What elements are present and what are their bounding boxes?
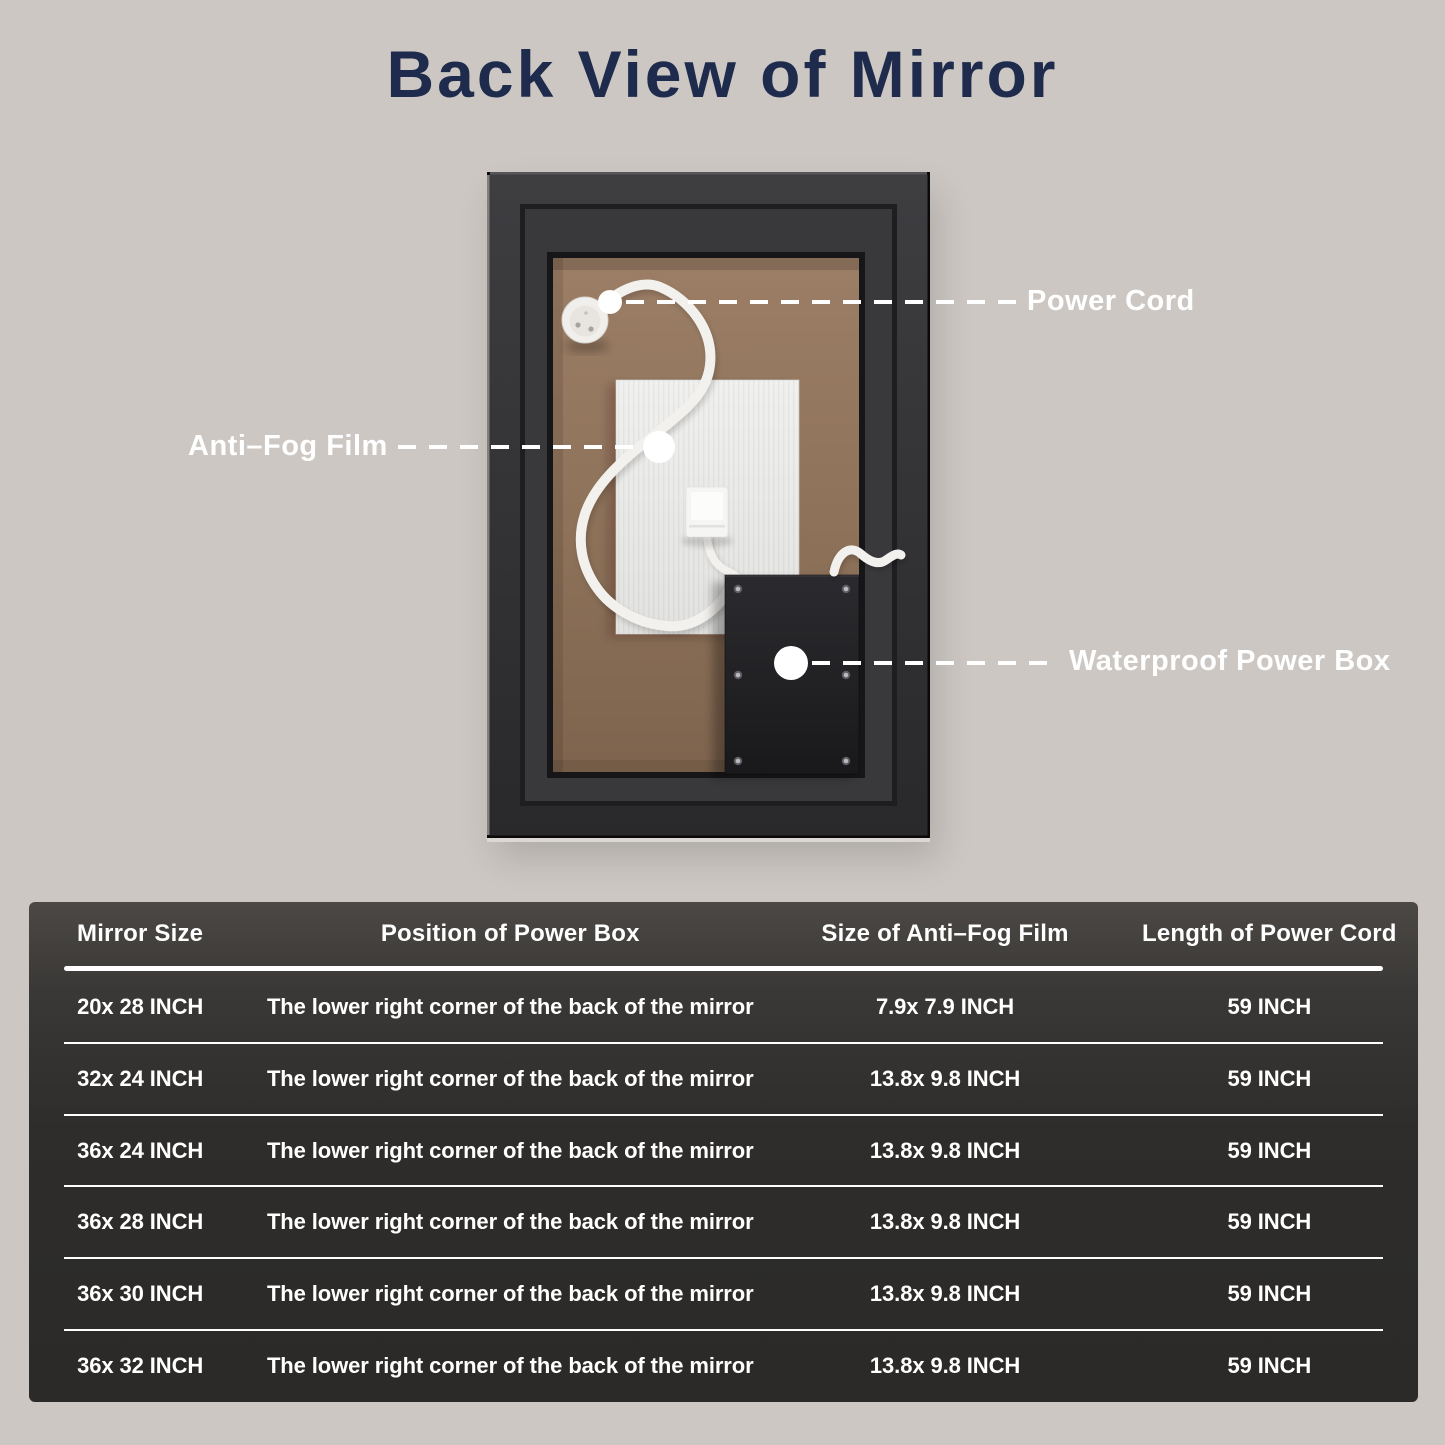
cell-mirror-size: 36x 32 INCH [29,1353,251,1379]
cell-film-size: 13.8x 9.8 INCH [769,1066,1120,1092]
column-header-cord-length: Length of Power Cord [1121,920,1418,948]
cell-power-box-position: The lower right corner of the back of th… [251,1353,769,1379]
column-header-mirror-size: Mirror Size [29,920,251,948]
waterproof-power-box-label: Waterproof Power Box [1069,645,1391,678]
cell-cord-length: 59 INCH [1121,994,1418,1020]
power-box-marker-dot [774,646,808,680]
spec-table-body: 20x 28 INCH The lower right corner of th… [29,971,1418,1402]
cell-film-size: 13.8x 9.8 INCH [769,1353,1120,1379]
cell-film-size: 13.8x 9.8 INCH [769,1138,1120,1164]
cell-mirror-size: 20x 28 INCH [29,994,251,1020]
anti-fog-film-marker-dot [643,431,675,463]
table-row: 36x 30 INCH The lower right corner of th… [29,1258,1418,1330]
cell-mirror-size: 36x 24 INCH [29,1138,251,1164]
mirror-back-illustration [487,172,930,838]
infographic-page: Back View of Mirror [0,0,1445,1445]
spec-table-header: Mirror Size Position of Power Box Size o… [29,902,1418,966]
cell-mirror-size: 36x 30 INCH [29,1281,251,1307]
power-cord-marker-dot [598,290,622,314]
cell-film-size: 13.8x 9.8 INCH [769,1209,1120,1235]
mirror-back-svg [487,172,930,838]
cell-cord-length: 59 INCH [1121,1209,1418,1235]
cell-mirror-size: 36x 28 INCH [29,1209,251,1235]
cell-cord-length: 59 INCH [1121,1353,1418,1379]
cell-power-box-position: The lower right corner of the back of th… [251,1209,769,1235]
table-row: 20x 28 INCH The lower right corner of th… [29,971,1418,1043]
cell-power-box-position: The lower right corner of the back of th… [251,1281,769,1307]
cell-film-size: 13.8x 9.8 INCH [769,1281,1120,1307]
table-row: 36x 32 INCH The lower right corner of th… [29,1330,1418,1402]
power-cord-label: Power Cord [1027,285,1195,318]
power-cord-leader-line [626,300,1016,304]
cell-cord-length: 59 INCH [1121,1066,1418,1092]
cell-film-size: 7.9x 7.9 INCH [769,994,1120,1020]
table-row: 32x 24 INCH The lower right corner of th… [29,1043,1418,1115]
anti-fog-film-label: Anti–Fog Film [188,430,388,463]
column-header-film-size: Size of Anti–Fog Film [769,920,1120,948]
cell-mirror-size: 32x 24 INCH [29,1066,251,1092]
anti-fog-film-leader-line [398,445,640,449]
cell-power-box-position: The lower right corner of the back of th… [251,1138,769,1164]
cell-power-box-position: The lower right corner of the back of th… [251,1066,769,1092]
cell-power-box-position: The lower right corner of the back of th… [251,994,769,1020]
spec-table: Mirror Size Position of Power Box Size o… [29,902,1418,1402]
cell-cord-length: 59 INCH [1121,1281,1418,1307]
page-title: Back View of Mirror [0,36,1445,112]
cell-cord-length: 59 INCH [1121,1138,1418,1164]
column-header-power-box-position: Position of Power Box [251,920,769,948]
film-connector [681,487,733,547]
table-row: 36x 28 INCH The lower right corner of th… [29,1186,1418,1258]
table-row: 36x 24 INCH The lower right corner of th… [29,1115,1418,1187]
power-box-leader-line [812,661,1056,665]
